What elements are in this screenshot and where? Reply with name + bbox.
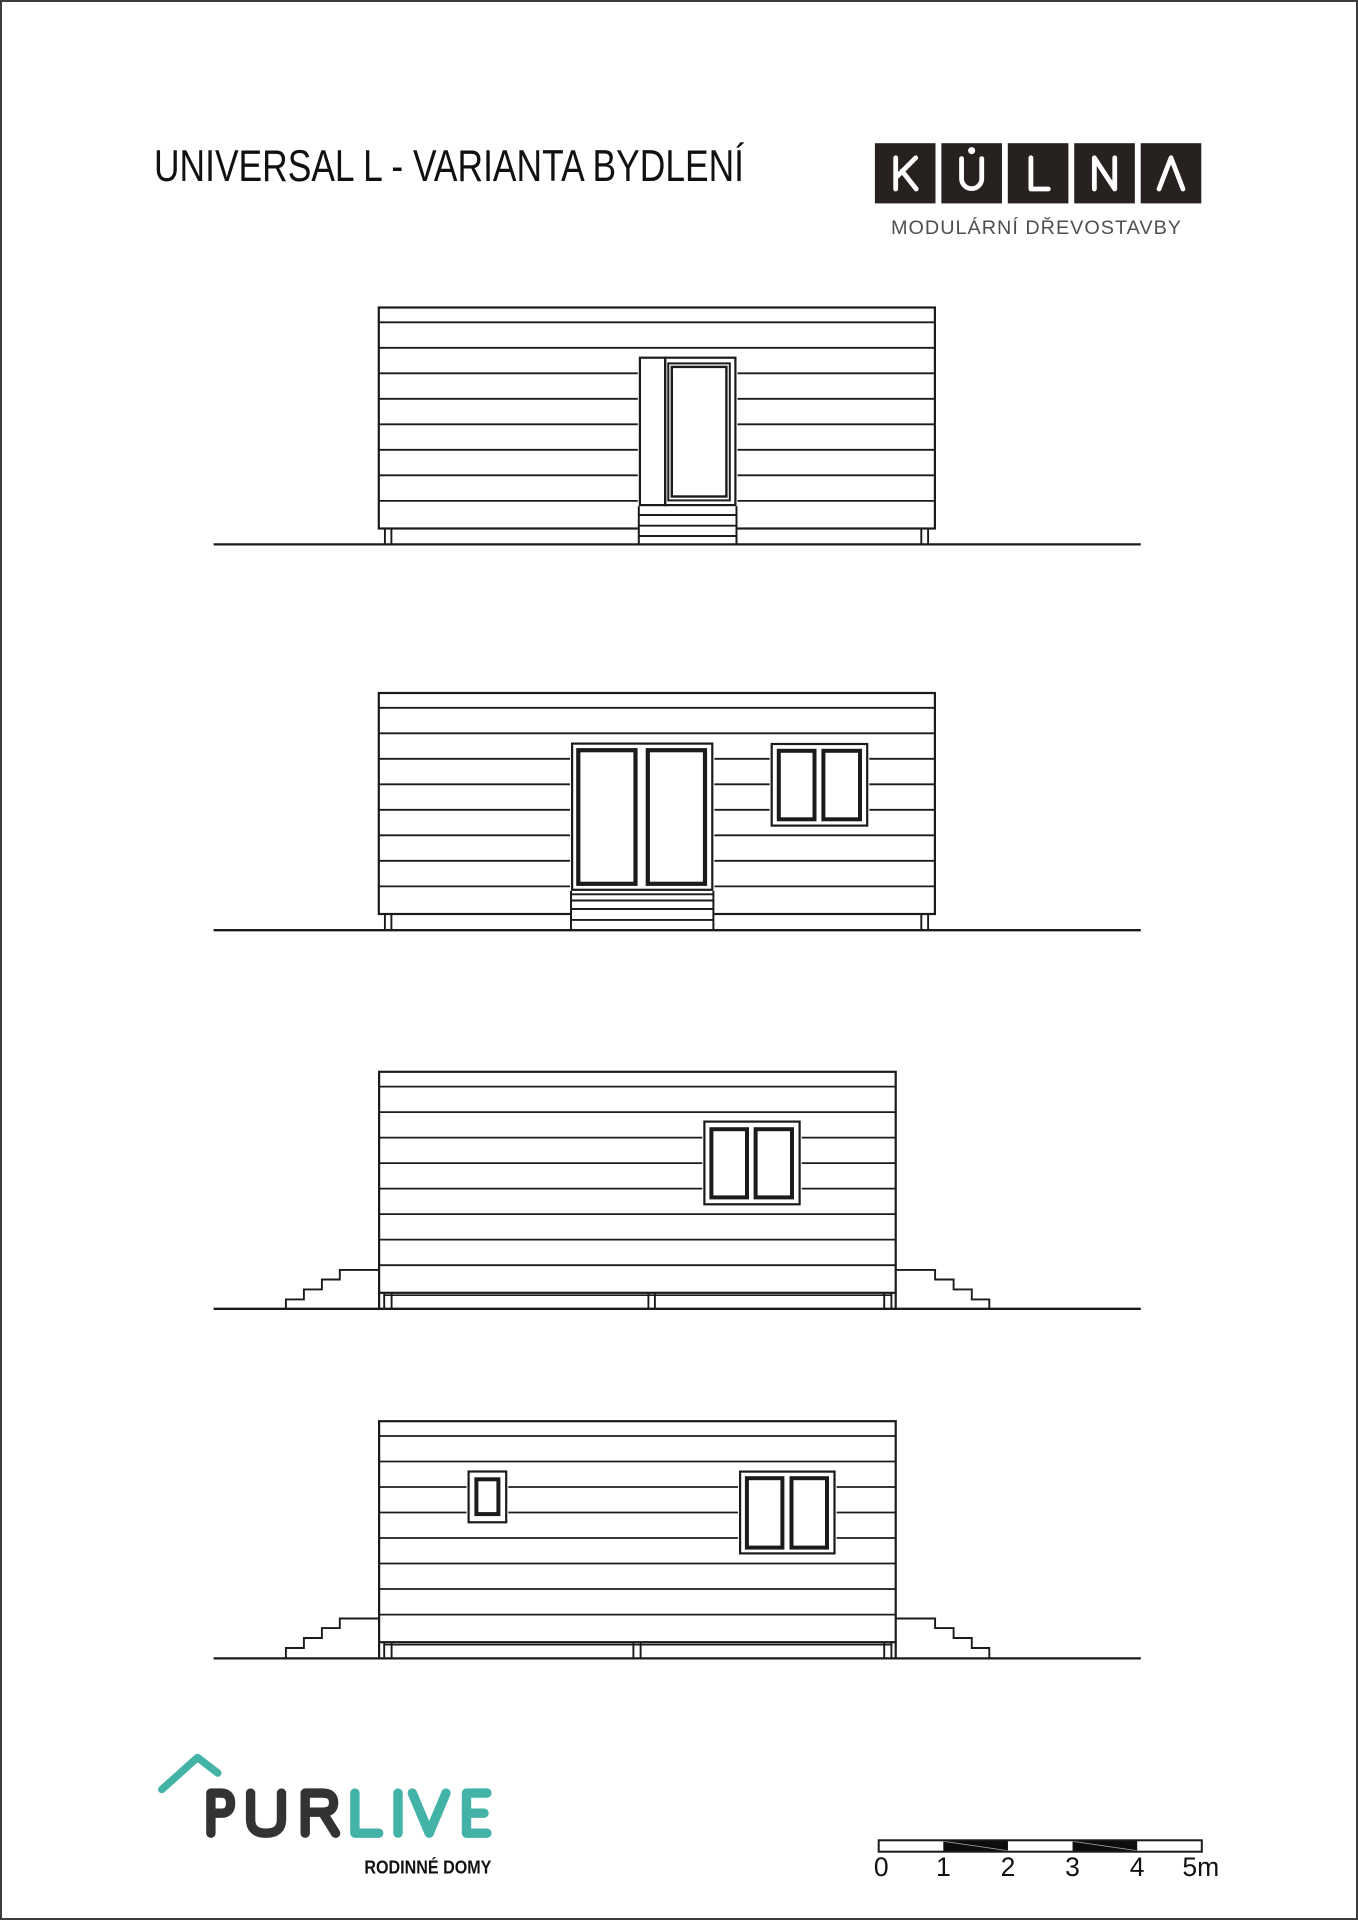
svg-text:5m: 5m: [1182, 1852, 1219, 1882]
svg-text:RODINNÉ DOMY: RODINNÉ DOMY: [364, 1857, 492, 1878]
svg-text:4: 4: [1130, 1852, 1145, 1882]
svg-text:0: 0: [874, 1852, 889, 1882]
svg-text:MODULÁRNÍ DŘEVOSTAVBY: MODULÁRNÍ DŘEVOSTAVBY: [891, 216, 1181, 239]
svg-text:3: 3: [1065, 1852, 1080, 1882]
svg-text:2: 2: [1001, 1852, 1016, 1882]
svg-text:1: 1: [936, 1852, 951, 1882]
svg-text:UNIVERSAL L - VARIANTA BYDLENÍ: UNIVERSAL L - VARIANTA BYDLENÍ: [154, 142, 745, 191]
